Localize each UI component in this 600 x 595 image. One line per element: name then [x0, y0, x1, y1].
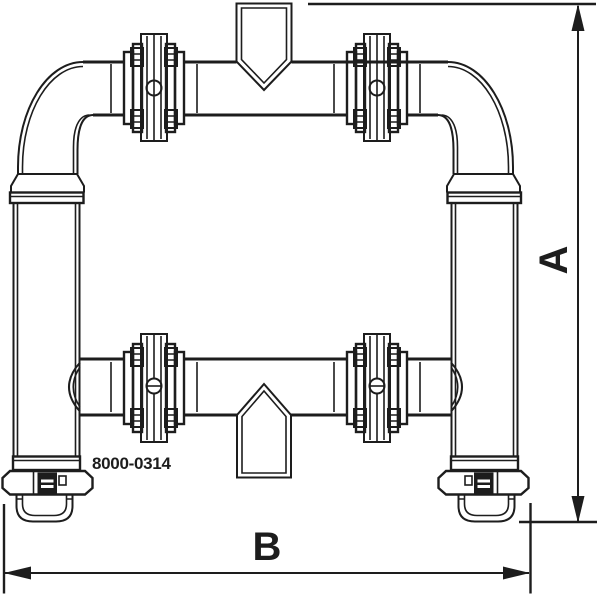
coupling-top-right	[334, 34, 420, 141]
outlet-port	[237, 384, 291, 478]
dimension-b: B	[4, 503, 531, 594]
coupling-bottom-right	[334, 334, 420, 442]
coupling-bottom-left	[111, 334, 197, 442]
part-number: 8000-0314	[92, 454, 171, 473]
technical-drawing-canvas: A B 8000-0314	[0, 0, 600, 595]
dimension-a-label: A	[532, 246, 576, 275]
pump-piping-assembly-drawing: A B 8000-0314	[0, 0, 600, 595]
right-side-assembly	[438, 62, 529, 522]
dimension-b-label: B	[253, 525, 282, 569]
arrow-down-icon	[572, 496, 585, 523]
arrow-left-icon	[4, 567, 31, 580]
coupling-top-left	[111, 34, 197, 141]
arrow-right-icon	[503, 567, 530, 580]
left-side-assembly	[3, 62, 94, 522]
arrow-up-icon	[572, 4, 585, 31]
inlet-port	[237, 4, 292, 91]
